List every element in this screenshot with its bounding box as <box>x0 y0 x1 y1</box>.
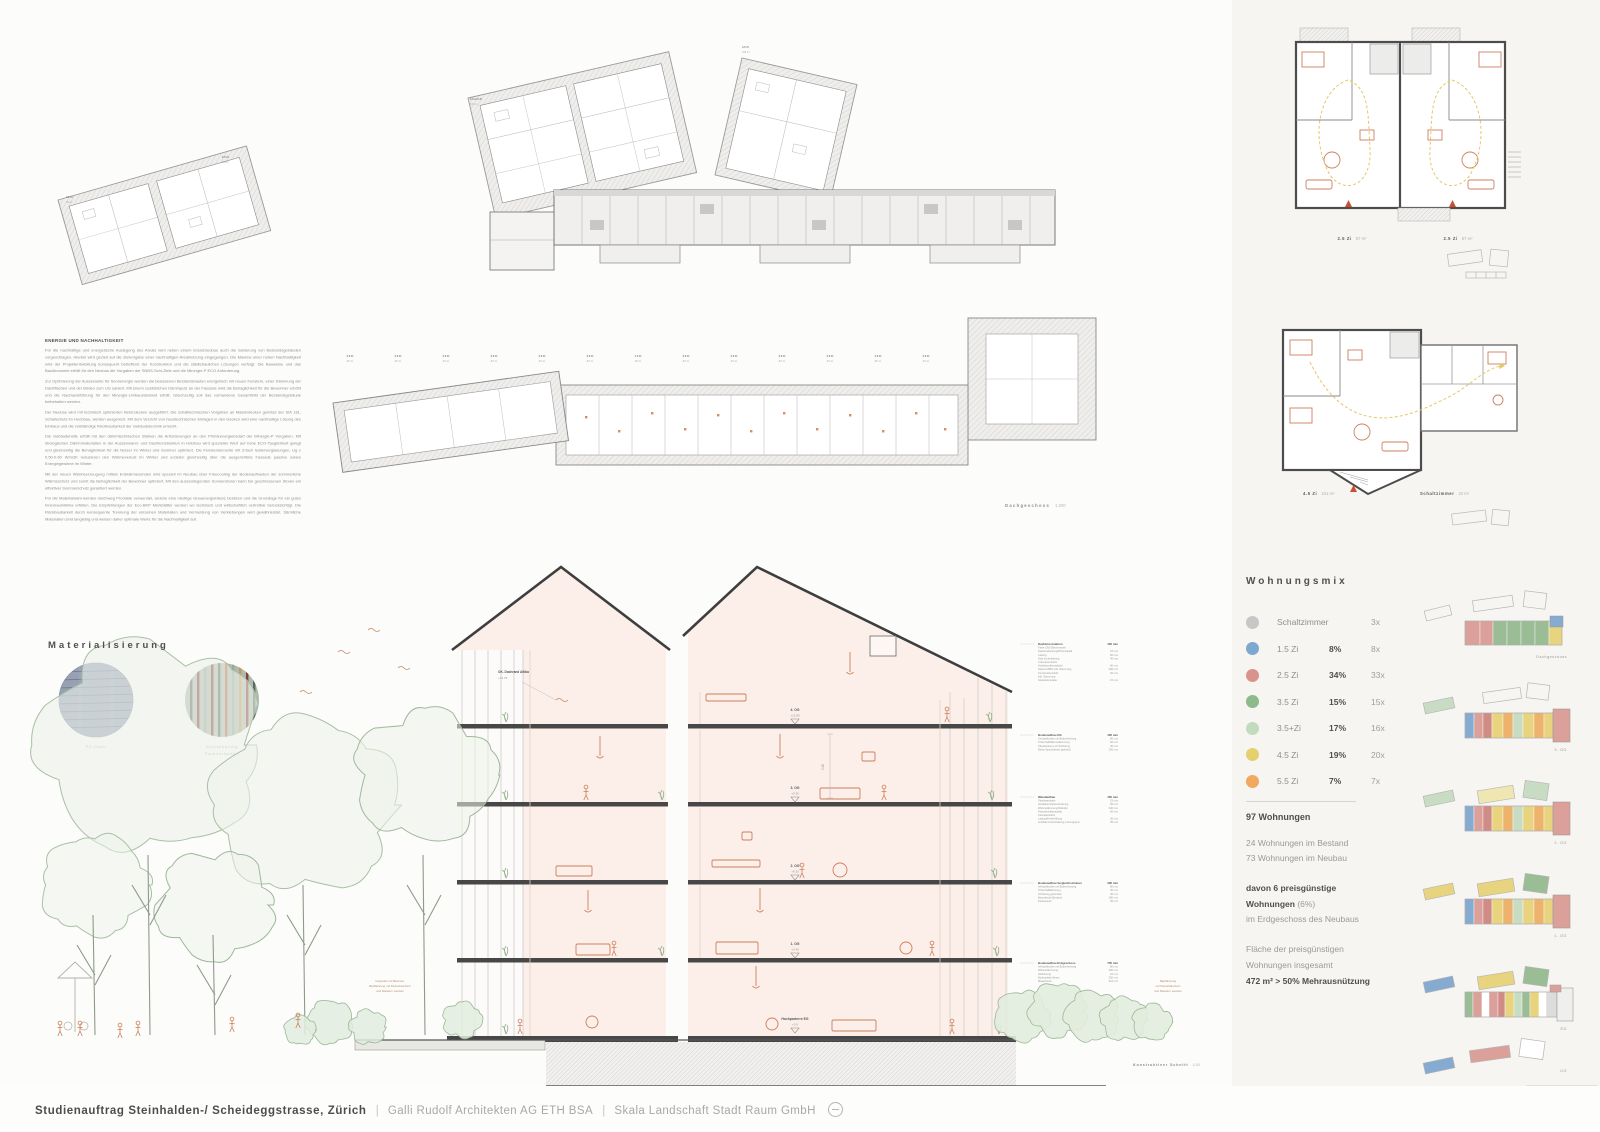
wohnungsmix-row: 1.5 Zi 8% 8x <box>1246 636 1446 663</box>
svg-text:Dachkonstruktion: Dachkonstruktion <box>1038 642 1063 646</box>
svg-text:+3.40: +3.40 <box>791 948 799 952</box>
unit-label-bottom-1: 4.5 Zi101 m² <box>1303 491 1335 496</box>
svg-text:40 mm: 40 mm <box>1110 656 1118 660</box>
svg-text:2.5+2.5 Zi: 2.5+2.5 Zi <box>470 97 482 101</box>
svg-text:80 mm: 80 mm <box>1110 965 1118 969</box>
divider <box>1246 801 1356 802</box>
svg-text:115 m²: 115 m² <box>470 103 478 106</box>
unit-type-percent: 34% <box>1329 670 1371 680</box>
svg-text:3.5 Zi: 3.5 Zi <box>779 354 786 358</box>
svg-text:39 m²: 39 m² <box>635 360 642 363</box>
unit-type-percent: 19% <box>1329 750 1371 760</box>
unit-type-label: 5.5 Zi <box>1277 776 1329 786</box>
unit-type-count: 16x <box>1371 723 1385 733</box>
svg-text:4.5 Zi: 4.5 Zi <box>875 354 882 358</box>
svg-text:Trittschalldämmung: Trittschalldämmung <box>1038 888 1061 892</box>
scale-doodads-1 <box>1447 249 1508 278</box>
svg-text:200 mm: 200 mm <box>1109 968 1118 972</box>
svg-text:96 m²: 96 m² <box>875 360 882 363</box>
wohnungsmix-heading: Wohnungsmix <box>1246 576 1446 587</box>
unit-type-dot <box>1246 669 1259 682</box>
svg-text:3.5 Zi: 3.5 Zi <box>683 354 690 358</box>
svg-text:vertikale Holzschalung (vorver: vertikale Holzschalung (vorvergraut) <box>1038 820 1080 824</box>
materialisierung-heading: Materialisierung <box>48 640 169 651</box>
unit-type-count: 20x <box>1371 750 1385 760</box>
svg-text:+12.80: +12.80 <box>790 714 800 718</box>
svg-text:Bepflanzung mit Kleinsträucher: Bepflanzung mit Kleinsträuchern <box>369 984 411 988</box>
svg-text:Beton-Spanndecke (gefräst): Beton-Spanndecke (gefräst) <box>1038 747 1071 751</box>
svg-text:400 mm: 400 mm <box>1107 733 1118 737</box>
svg-text:Lattung: Lattung <box>1038 653 1047 657</box>
wohnungsmix-block: Wohnungsmix Schaltzimmer 3x 1.5 Zi 8% 8x <box>1246 576 1446 989</box>
unit-type-count: 7x <box>1371 776 1380 786</box>
unit-type-label: 3.5 Zi <box>1277 697 1329 707</box>
unit-type-percent: 17% <box>1329 723 1371 733</box>
unit-label-bottom-2: Schaltzimmer22 m² <box>1420 491 1470 496</box>
svg-text:3.5 Zi: 3.5 Zi <box>491 354 498 358</box>
svg-text:und Stauden, Hecken: und Stauden, Hecken <box>1154 989 1182 993</box>
svg-text:Abdichtung: Abdichtung <box>1038 972 1052 976</box>
unit-type-label: 2.5 Zi <box>1277 670 1329 680</box>
svg-text:20 mm: 20 mm <box>1110 671 1118 675</box>
svg-text:60 mm: 60 mm <box>1110 664 1118 668</box>
svg-text:2.5 Zi: 2.5 Zi <box>443 354 450 358</box>
svg-text:1.5 Zi: 1.5 Zi <box>635 354 642 358</box>
north-arrow-icon <box>828 1102 843 1117</box>
svg-text:64 m²: 64 m² <box>827 360 834 363</box>
unit-type-label: 3.5+Zi <box>1277 723 1329 733</box>
wohnungsmix-row: 2.5 Zi 34% 33x <box>1246 662 1446 689</box>
svg-text:Bepflanzung: Bepflanzung <box>1160 979 1176 983</box>
svg-text:Wärmedämmung: Wärmedämmung <box>1038 968 1058 972</box>
svg-text:108 m²: 108 m² <box>742 51 750 54</box>
energy-paragraph: Mit der neuen Wärmeerzeugung mittels Erd… <box>45 471 301 492</box>
svg-text:230 mm: 230 mm <box>1109 747 1118 751</box>
presentation-board: Dachgeschoss1:200 2.5 Zi60 m²2.5 Zi60 m²… <box>0 0 1600 1132</box>
svg-text:400 mm: 400 mm <box>1107 642 1118 646</box>
architect-name: Galli Rudolf Architekten AG ETH BSA <box>388 1105 593 1117</box>
svg-text:2.5 Zi: 2.5 Zi <box>395 354 402 358</box>
svg-text:Anhydritboden mit Bodenheizung: Anhydritboden mit Bodenheizung <box>1038 737 1077 741</box>
energy-paragraph: Die Gebäudehülle erfüllt mit den dämmtec… <box>45 433 301 467</box>
svg-text:4. OG: 4. OG <box>790 708 799 712</box>
svg-text:Bodenplatte Beton: Bodenplatte Beton <box>1038 975 1060 979</box>
wohnungsmix-row: Schaltzimmer 3x <box>1246 609 1446 636</box>
unit-type-label: 1.5 Zi <box>1277 644 1329 654</box>
section-caption: Konstruktiver Schnitt1:50 <box>1133 1063 1200 1067</box>
svg-text:60 m²: 60 m² <box>347 360 354 363</box>
unit-plan-lower: 4.5 Zi101 m² Schaltzimmer22 m² <box>1283 330 1517 526</box>
svg-text:Holzfaserdämmplatte: Holzfaserdämmplatte <box>1038 664 1063 668</box>
svg-text:750 mm: 750 mm <box>1107 961 1118 965</box>
svg-text:80 mm: 80 mm <box>1110 737 1118 741</box>
total-apartments: 97 Wohnungen <box>1246 812 1446 822</box>
unit-label-top-1: 2.5 Zi67 m² <box>1337 236 1367 241</box>
separator: | <box>596 1105 611 1117</box>
svg-text:3.5 Zi: 3.5 Zi <box>587 354 594 358</box>
energy-heading: ENERGIE UND NACHHALTIGKEIT <box>45 338 301 343</box>
svg-text:3. OG: 3. OG <box>1554 748 1567 752</box>
svg-text:EG: EG <box>1561 1027 1568 1031</box>
title-bar: Studienauftrag Steinhalden-/ Scheideggst… <box>0 1086 1600 1132</box>
affordable-line2: Wohnungen <box>1246 899 1295 909</box>
svg-text:60 mm: 60 mm <box>1110 892 1118 896</box>
svg-text:Wandaufbau: Wandaufbau <box>1038 795 1055 799</box>
svg-text:84 m²: 84 m² <box>683 360 690 363</box>
svg-text:Überdeckung mit Schüttung: Überdeckung mit Schüttung <box>1038 744 1071 748</box>
svg-text:2.5 Zi: 2.5 Zi <box>731 354 738 358</box>
unit-type-percent: 8% <box>1329 644 1371 654</box>
energy-paragraph: Für die nachhaltige und energetische Aus… <box>45 347 301 375</box>
svg-text:3. OG: 3. OG <box>790 786 799 790</box>
dachgeschoss-left-wing <box>333 371 569 472</box>
svg-text:30 mm: 30 mm <box>1110 899 1118 903</box>
svg-text:Konstruktionsholz: Konstruktionsholz <box>1038 671 1059 675</box>
svg-text:2.5 Zi: 2.5 Zi <box>827 354 834 358</box>
svg-text:Lattung/Hinterlüftung: Lattung/Hinterlüftung <box>1038 817 1063 821</box>
svg-text:Anhydritboden mit Bodenheizung: Anhydritboden mit Bodenheizung <box>1038 885 1077 889</box>
svg-text:Bodenaufbau OG: Bodenaufbau OG <box>1038 733 1063 737</box>
svg-text:64 m²: 64 m² <box>923 360 930 363</box>
svg-text:2.5 Zi: 2.5 Zi <box>539 354 546 358</box>
svg-text:Dacheindeckung/Photovoltaik: Dacheindeckung/Photovoltaik <box>1038 649 1073 653</box>
svg-text:210 mm: 210 mm <box>1109 979 1118 983</box>
svg-text:65 m²: 65 m² <box>66 201 73 204</box>
svg-text:69 m²: 69 m² <box>222 161 229 164</box>
svg-text:Installationsebene/Lattung: Installationsebene/Lattung <box>1038 802 1069 806</box>
area-total: 472 m² > 50% Mehrausnützung <box>1246 976 1370 986</box>
svg-text:Holzweichfaserplatte: Holzweichfaserplatte <box>1038 809 1062 813</box>
unit-type-percent: 7% <box>1329 776 1371 786</box>
svg-text:Bodenaufbau Vergleichszimmer: Bodenaufbau Vergleichszimmer <box>1038 881 1083 885</box>
svg-text:Unterspannbahn: Unterspannbahn <box>1038 660 1058 664</box>
svg-text:Fassadenbahn: Fassadenbahn <box>1038 813 1056 817</box>
svg-text:Vorgarten mit Bäumen,: Vorgarten mit Bäumen, <box>375 979 405 983</box>
unit-type-dot <box>1246 748 1259 761</box>
svg-text:60 m²: 60 m² <box>395 360 402 363</box>
wohnungsmix-row: 3.5+Zi 17% 16x <box>1246 715 1446 742</box>
svg-text:60 mm: 60 mm <box>1110 740 1118 744</box>
svg-text:Gipskartonplatte: Gipskartonplatte <box>1038 678 1057 682</box>
svg-text:2.5 Zi: 2.5 Zi <box>923 354 930 358</box>
svg-text:2.5 Zi: 2.5 Zi <box>347 354 354 358</box>
svg-text:64 m²: 64 m² <box>731 360 738 363</box>
unit-type-dot <box>1246 642 1259 655</box>
svg-text:2.5 Zi: 2.5 Zi <box>66 195 73 199</box>
svg-text:und Stauden, Hecken: und Stauden, Hecken <box>376 989 404 993</box>
unit-type-count: 3x <box>1371 617 1380 627</box>
svg-text:60 mm: 60 mm <box>1110 653 1118 657</box>
svg-text:Schüttung gebunden: Schüttung gebunden <box>1038 892 1062 896</box>
svg-text:OK. Dachrand Attika: OK. Dachrand Attika <box>498 670 529 674</box>
svg-text:Holz Konterlattung: Holz Konterlattung <box>1038 656 1060 660</box>
wohnungsmix-row: 5.5 Zi 7% 7x <box>1246 768 1446 795</box>
svg-text:2. OG: 2. OG <box>1554 841 1567 845</box>
unit-type-dot <box>1246 695 1259 708</box>
svg-text:15 mm: 15 mm <box>1110 678 1118 682</box>
svg-text:4.5 Zi: 4.5 Zi <box>742 45 749 49</box>
unit-type-label: Schaltzimmer <box>1277 617 1329 627</box>
svg-text:Anhydritboden mit Bodenheizung: Anhydritboden mit Bodenheizung <box>1038 965 1077 969</box>
svg-text:+9.30: +9.30 <box>791 792 799 796</box>
affordable-pct: (6%) <box>1295 899 1315 909</box>
svg-text:Betondecke Bestand: Betondecke Bestand <box>1038 895 1062 899</box>
svg-text:Trittschall/Wärmedämmung: Trittschall/Wärmedämmung <box>1038 740 1070 744</box>
svg-text:+13.78: +13.78 <box>498 676 508 680</box>
svg-text:2.60: 2.60 <box>821 764 825 770</box>
svg-text:Sparren/BSH inkl. Dämmung: Sparren/BSH inkl. Dämmung <box>1038 667 1072 671</box>
neubau-count: 73 Wohnungen im Neubau <box>1246 851 1446 867</box>
svg-text:Magerbeton: Magerbeton <box>1038 979 1052 983</box>
svg-text:inkl. Dämmung: inkl. Dämmung <box>1038 674 1056 678</box>
svg-text:+6.30: +6.30 <box>791 870 799 874</box>
svg-text:64 m²: 64 m² <box>539 360 546 363</box>
unit-type-dot <box>1246 616 1259 629</box>
unit-type-percent: 15% <box>1329 697 1371 707</box>
svg-text:250 mm: 250 mm <box>1109 975 1118 979</box>
construction-annotations: Dachkonstruktion400 mmFalze CNS Blechman… <box>1020 642 1118 983</box>
wohnungsmix-row: 4.5 Zi 19% 20x <box>1246 742 1446 769</box>
svg-text:15 mm: 15 mm <box>1110 799 1118 803</box>
wohnungsmix-row: 3.5 Zi 15% 15x <box>1246 689 1446 716</box>
bestand-count: 24 Wohnungen im Bestand <box>1246 836 1446 852</box>
svg-text:Hochparterre EG: Hochparterre EG <box>781 1017 808 1021</box>
svg-text:40 mm: 40 mm <box>1110 888 1118 892</box>
svg-text:+0.5: +0.5 <box>792 1023 798 1027</box>
project-title: Studienauftrag Steinhalden-/ Scheideggst… <box>35 1105 367 1117</box>
svg-text:260 mm: 260 mm <box>1109 667 1118 671</box>
svg-text:Deckenputz: Deckenputz <box>1038 899 1052 903</box>
svg-text:390 mm: 390 mm <box>1107 881 1118 885</box>
affordable-line3: im Erdgeschoss des Neubaus <box>1246 912 1446 928</box>
long-plan-upper <box>490 190 1055 270</box>
affordable-line1: davon 6 preisgünstige <box>1246 883 1336 893</box>
svg-text:80 mm: 80 mm <box>1110 885 1118 889</box>
unit-micro-labels: 2.5 Zi60 m²2.5 Zi60 m²2.5 Zi64 m²3.5 Zi8… <box>347 354 930 363</box>
svg-text:84 m²: 84 m² <box>779 360 786 363</box>
unit-label-top-2: 2.5 Zi67 m² <box>1443 236 1473 241</box>
unit-type-count: 15x <box>1371 697 1385 707</box>
svg-text:84 m²: 84 m² <box>491 360 498 363</box>
energy-paragraph: Für die Materialwahl werden durchweg Pro… <box>45 495 301 523</box>
svg-text:15 mm: 15 mm <box>1110 649 1118 653</box>
svg-text:Gipsfaserplatte: Gipsfaserplatte <box>1038 799 1056 803</box>
svg-text:50 mm: 50 mm <box>1110 802 1118 806</box>
svg-text:84 m²: 84 m² <box>587 360 594 363</box>
svg-text:35 mm: 35 mm <box>1110 820 1118 824</box>
svg-text:Falze CNS Blechmantel: Falze CNS Blechmantel <box>1038 646 1066 650</box>
unit-type-label: 4.5 Zi <box>1277 750 1329 760</box>
site-plan-rotated-3 <box>715 58 857 201</box>
svg-text:Bodenaufbau Erdgeschoss: Bodenaufbau Erdgeschoss <box>1038 961 1076 965</box>
site-plan-rotated-1 <box>58 146 271 285</box>
svg-text:50 mm: 50 mm <box>1110 817 1118 821</box>
scale-doodads-2 <box>1452 509 1510 526</box>
svg-text:mit Kleinsträuchern: mit Kleinsträuchern <box>1156 984 1181 988</box>
unit-plan-pair: 2.5 Zi67 m² 2.5 Zi67 m² <box>1296 28 1521 278</box>
area-line2: Wohnungen insgesamt <box>1246 958 1446 974</box>
svg-text:64 m²: 64 m² <box>443 360 450 363</box>
svg-text:Dachgeschoss: Dachgeschoss <box>1536 655 1567 659</box>
svg-text:1. OG: 1. OG <box>1554 934 1567 938</box>
svg-text:UG: UG <box>1560 1069 1567 1073</box>
dachgeschoss-caption: Dachgeschoss1:200 <box>1005 503 1066 508</box>
unit-type-count: 33x <box>1371 670 1385 680</box>
svg-text:240 mm: 240 mm <box>1109 806 1118 810</box>
separator: | <box>370 1105 385 1117</box>
area-line1: Fläche der preisgünstigen <box>1246 942 1446 958</box>
wohnungsmix-rows: Schaltzimmer 3x 1.5 Zi 8% 8x 2.5 Zi 34% … <box>1246 609 1446 795</box>
svg-text:30 mm: 30 mm <box>1110 744 1118 748</box>
svg-text:Wärmedämmung/Ständer: Wärmedämmung/Ständer <box>1038 806 1068 810</box>
landscape-architect-name: Skala Landschaft Stadt Raum GmbH <box>614 1105 815 1117</box>
svg-text:2.5 Zi: 2.5 Zi <box>222 155 229 159</box>
svg-text:10 mm: 10 mm <box>1110 972 1118 976</box>
energy-text-block: ENERGIE UND NACHHALTIGKEIT Für die nachh… <box>45 338 301 526</box>
svg-text:2. OG: 2. OG <box>790 864 799 868</box>
unit-type-dot <box>1246 722 1259 735</box>
energy-paragraph: Zur Optimierung der Aussenseite für Sonn… <box>45 378 301 406</box>
svg-text:60 mm: 60 mm <box>1110 809 1118 813</box>
unit-type-count: 8x <box>1371 644 1380 654</box>
unit-type-dot <box>1246 775 1259 788</box>
energy-paragraph: Der Neubau wird mit technisch optimierte… <box>45 409 301 430</box>
svg-text:180 mm: 180 mm <box>1109 895 1118 899</box>
svg-text:1. OG: 1. OG <box>790 942 799 946</box>
svg-text:450 mm: 450 mm <box>1107 795 1118 799</box>
